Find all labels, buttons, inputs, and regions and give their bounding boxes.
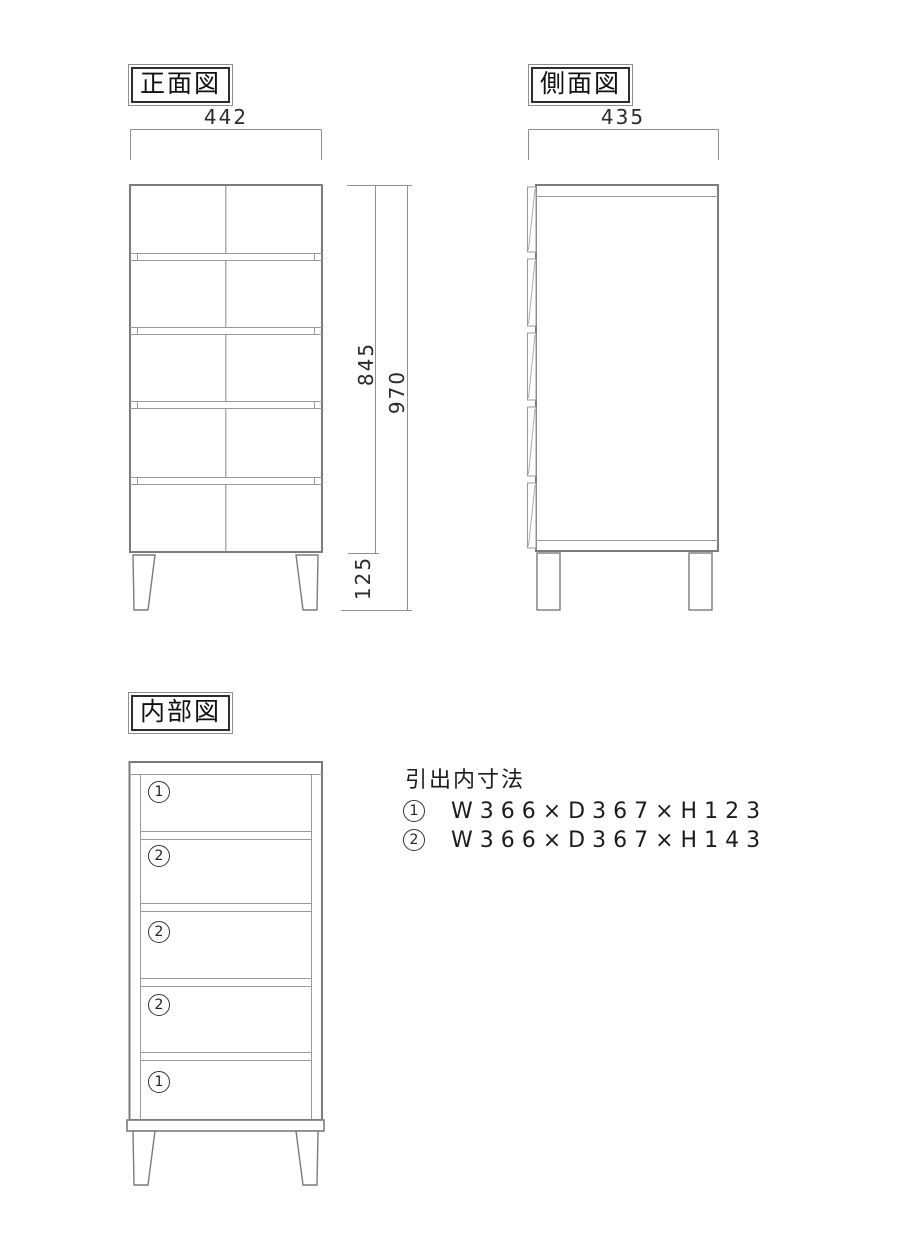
compartment-4-badge: 2 [148,994,170,1016]
side-view: 435 [528,105,719,610]
spec-row-1-badge: 1 [403,800,425,822]
spec-row-2-badge: 2 [403,829,425,851]
drawer-spec-row-1: 1 W366×D367×H123 [403,799,767,823]
side-view-label-text: 側面図 [531,67,630,103]
front-width-dim-value: 442 [204,105,248,129]
compartment-3-badge: 2 [148,921,170,943]
front-view-label-text: 正面図 [131,67,230,103]
side-depth-dimension [529,130,719,161]
internal-left-leg [133,1131,155,1185]
front-view-label: 正面図 [128,64,233,106]
technical-drawing: 442 [0,0,900,1250]
side-back-leg [689,553,712,610]
internal-view-label-text: 内部図 [131,695,230,731]
compartment-2-badge: 2 [148,845,170,867]
front-left-leg [133,555,155,610]
spec-row-2-dimensions: W366×D367×H143 [451,828,767,853]
side-front-leg [537,553,560,610]
body-height-dim-value: 845 [354,342,378,386]
front-view: 442 [130,105,412,611]
side-body-outline [536,185,718,551]
side-view-label: 側面図 [528,64,633,106]
front-right-leg [296,555,318,610]
front-width-dimension [131,130,322,161]
drawer-spec-title: 引出内寸法 [405,762,767,794]
compartment-5-badge: 1 [148,1071,170,1093]
internal-bottom-band [127,1120,324,1131]
internal-view-label: 内部図 [128,692,233,734]
spec-row-1-dimensions: W366×D367×H123 [451,799,767,824]
side-drawer-fronts [528,187,537,548]
compartment-1-badge: 1 [148,781,170,803]
internal-right-leg [296,1131,318,1185]
drawer-spec-block: 引出内寸法 1 W366×D367×H123 2 W366×D367×H143 [403,762,767,852]
internal-view [127,762,324,1185]
drawer-spec-row-2: 2 W366×D367×H143 [403,828,767,852]
side-depth-dim-value: 435 [601,105,645,129]
drawing-sheet: 442 [0,0,900,1250]
leg-height-dim-value: 125 [351,556,375,600]
total-height-dim-value: 970 [385,370,409,414]
